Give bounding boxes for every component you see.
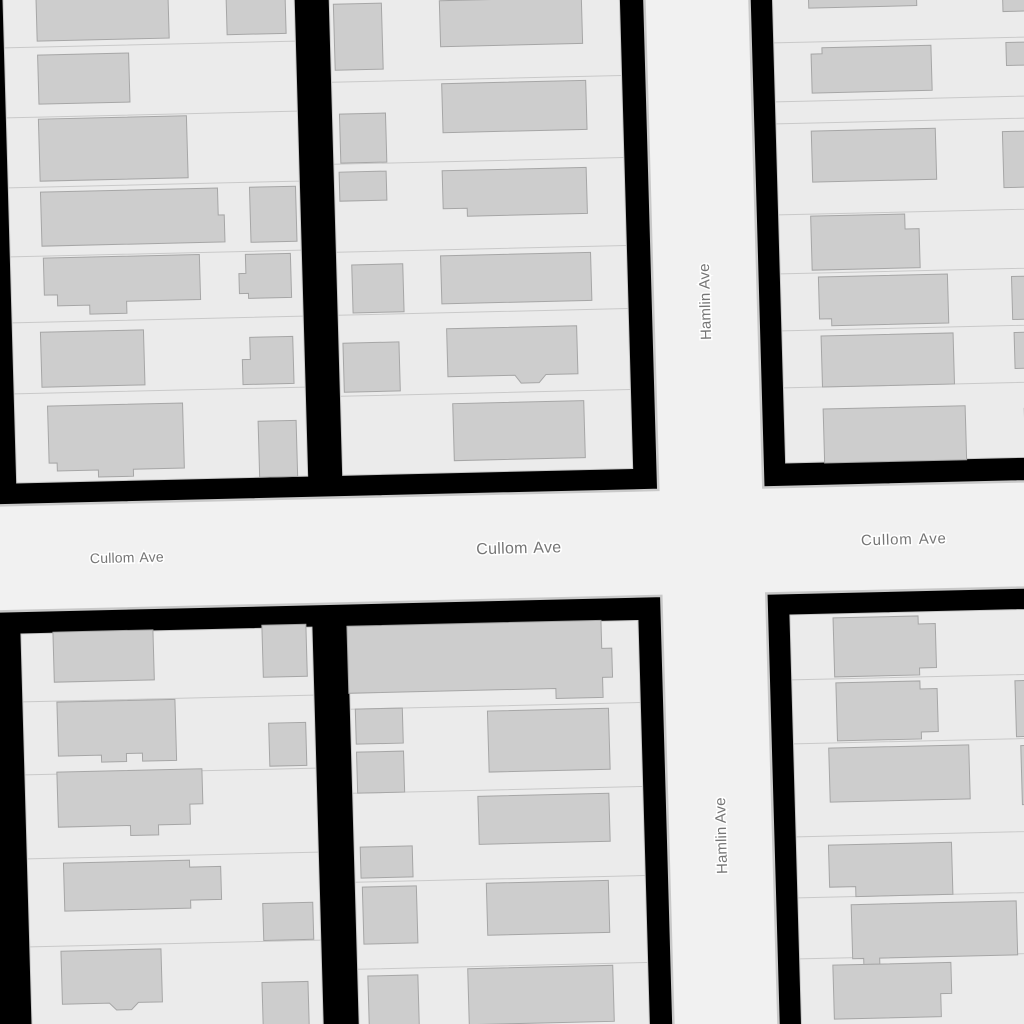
svg-text:Cullom Ave: Cullom Ave — [90, 549, 164, 567]
svg-text:Hamlin Ave: Hamlin Ave — [712, 797, 731, 874]
svg-text:Cullom Ave: Cullom Ave — [861, 530, 947, 549]
svg-text:Cullom Ave: Cullom Ave — [476, 539, 562, 558]
svg-text:Hamlin Ave: Hamlin Ave — [696, 263, 715, 340]
